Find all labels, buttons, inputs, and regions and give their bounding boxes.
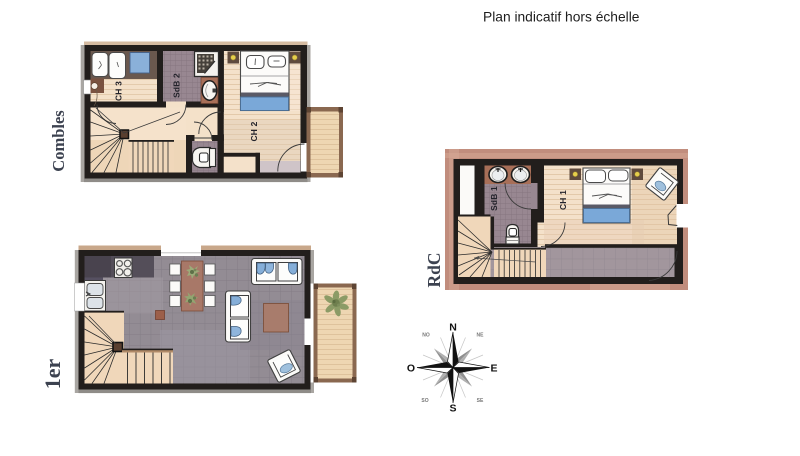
svg-text:S: S: [449, 403, 456, 415]
svg-text:Plan indicatif hors échelle: Plan indicatif hors échelle: [483, 10, 640, 25]
svg-text:SO: SO: [421, 398, 428, 404]
svg-text:CH 2: CH 2: [249, 121, 259, 141]
svg-text:O: O: [407, 363, 415, 375]
svg-text:RdC: RdC: [424, 252, 444, 287]
svg-text:E: E: [490, 363, 497, 375]
svg-text:NO: NO: [422, 333, 430, 339]
svg-text:SdB 1: SdB 1: [489, 186, 499, 211]
svg-text:SE: SE: [477, 398, 484, 404]
svg-text:SdB 2: SdB 2: [172, 73, 182, 98]
svg-text:CH 3: CH 3: [114, 81, 124, 101]
svg-text:N: N: [449, 322, 457, 334]
svg-text:1er: 1er: [40, 359, 65, 390]
svg-text:NE: NE: [477, 333, 485, 339]
svg-text:Combles: Combles: [49, 110, 68, 172]
svg-text:CH 1: CH 1: [558, 190, 568, 210]
